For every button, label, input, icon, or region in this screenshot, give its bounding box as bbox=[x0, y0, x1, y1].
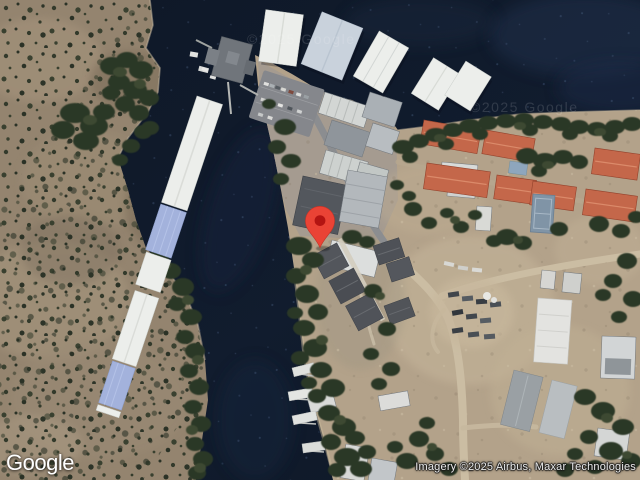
map-canvas[interactable]: ©2025 Google ©2025 Google Google Imagery… bbox=[0, 0, 640, 480]
google-logo[interactable]: Google bbox=[6, 450, 74, 476]
imagery-watermark: ©2025 Google bbox=[247, 31, 356, 47]
map-attribution: Imagery ©2025 Airbus, Maxar Technologies bbox=[415, 461, 636, 473]
satellite-imagery: ©2025 Google ©2025 Google bbox=[0, 0, 640, 480]
pin-dot bbox=[315, 215, 326, 226]
imagery-watermark: ©2025 Google bbox=[470, 99, 579, 115]
